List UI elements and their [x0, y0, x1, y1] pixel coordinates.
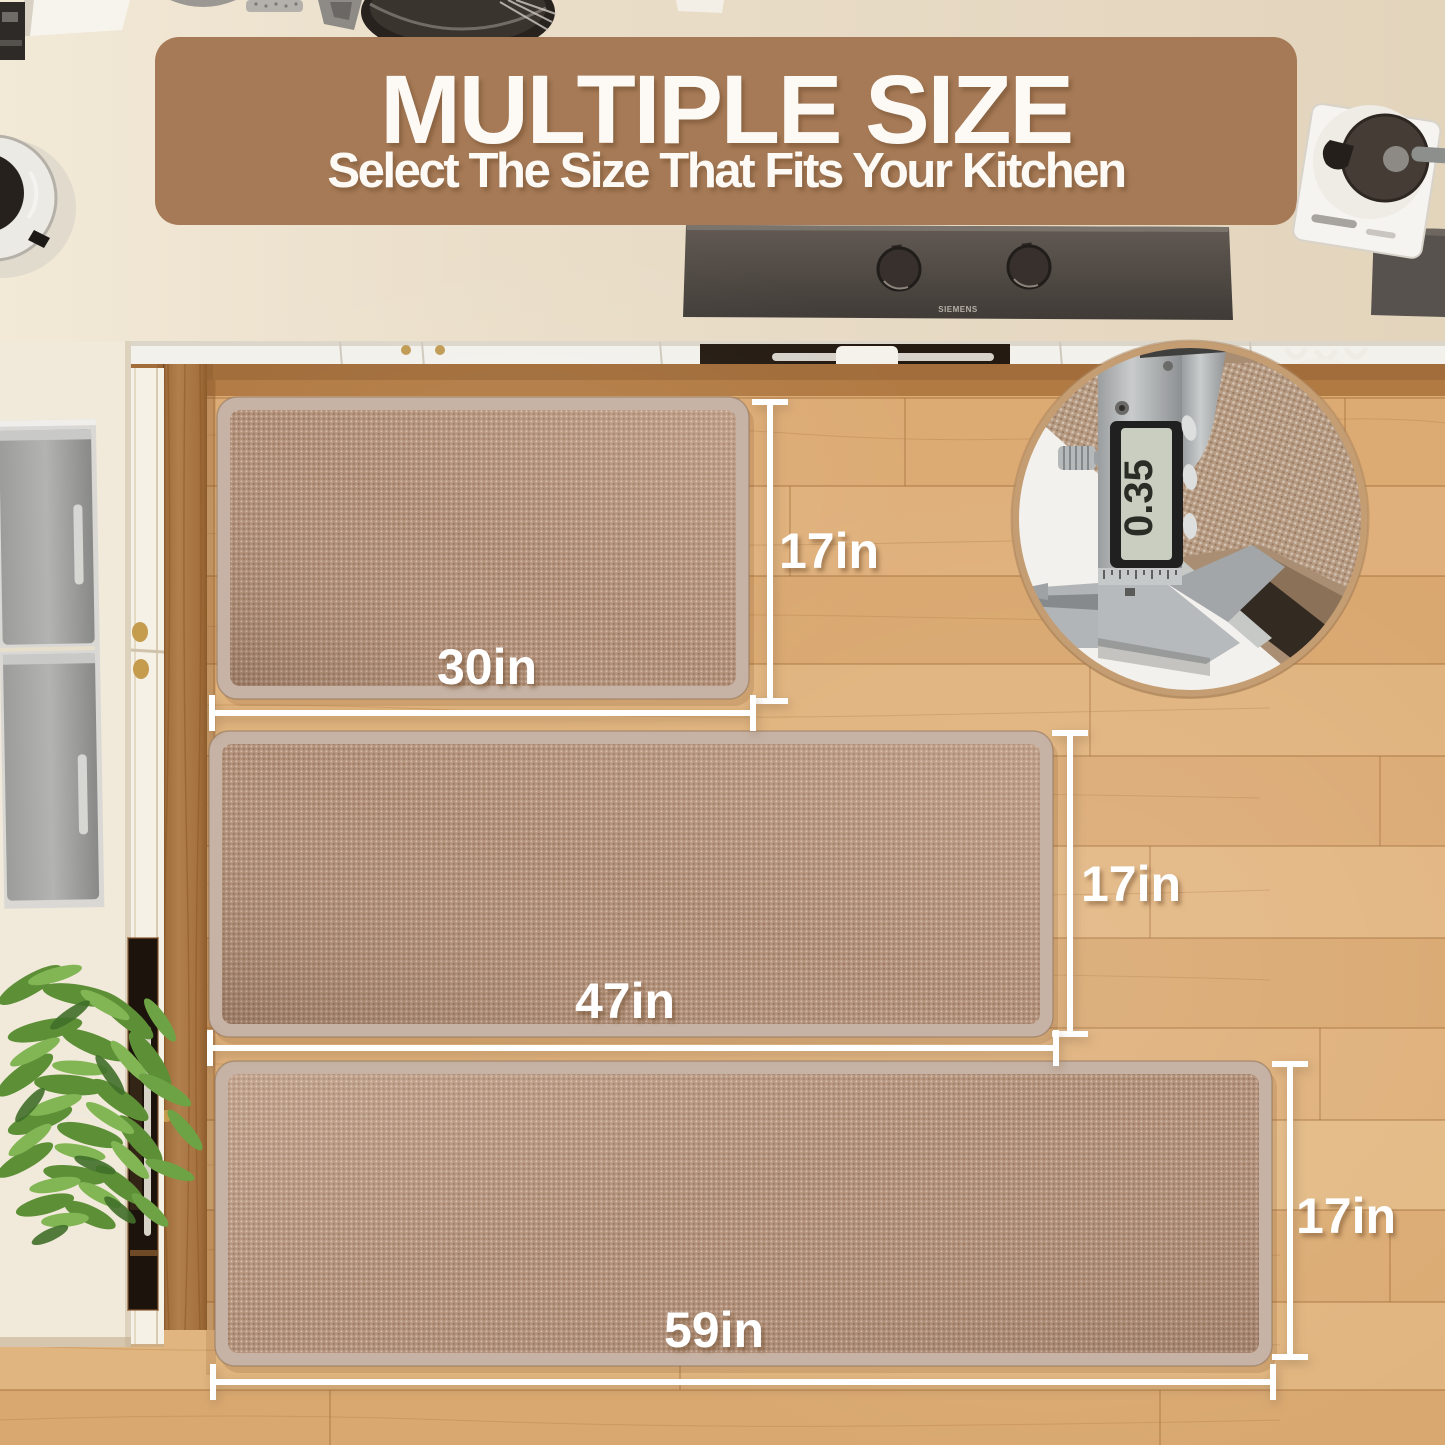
svg-text:47in: 47in: [575, 973, 675, 1029]
svg-text:0.35: 0.35: [1117, 459, 1161, 537]
svg-text:SIEMENS: SIEMENS: [938, 305, 978, 314]
svg-text:59in: 59in: [664, 1302, 764, 1358]
svg-text:Select The Size That Fits Your: Select The Size That Fits Your Kitchen: [327, 144, 1124, 198]
svg-text:17in: 17in: [1081, 856, 1181, 912]
svg-text:17in: 17in: [1296, 1188, 1396, 1244]
svg-text:30in: 30in: [437, 639, 537, 695]
svg-text:17in: 17in: [779, 523, 879, 579]
